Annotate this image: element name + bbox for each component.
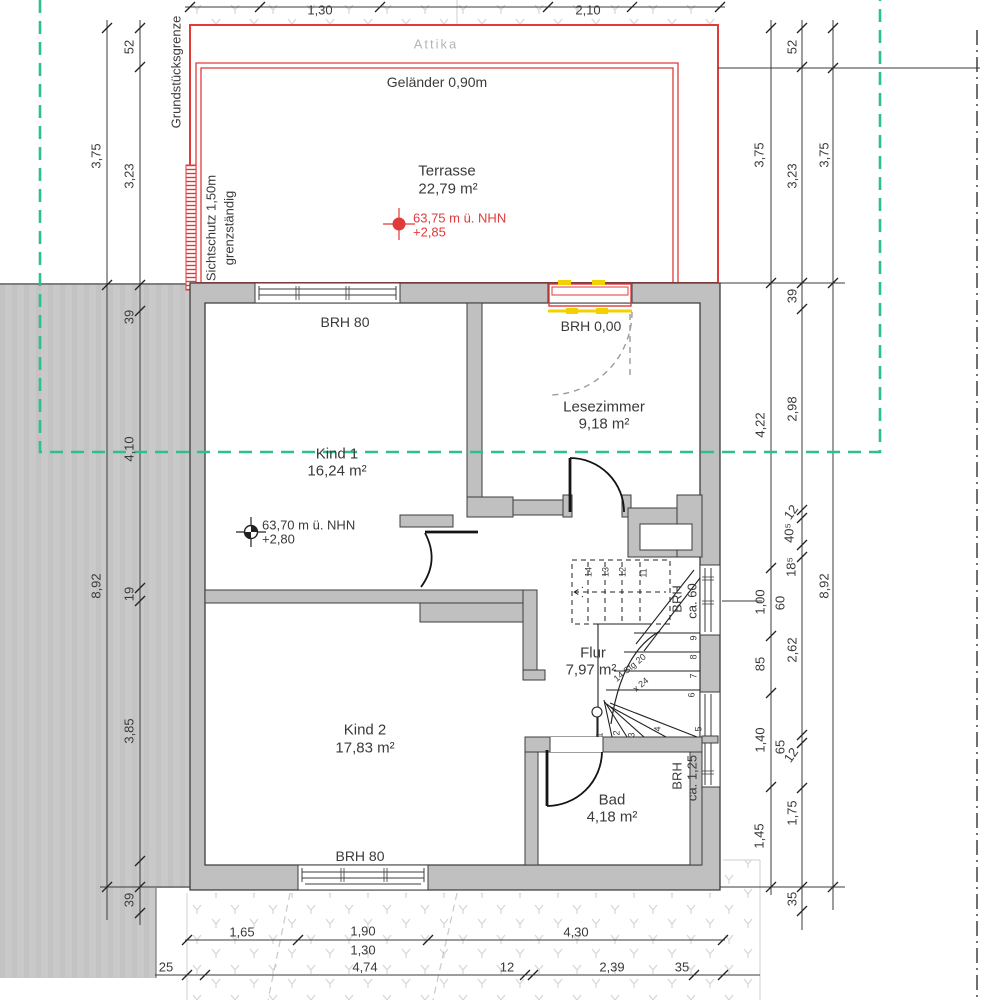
bad-door-swing [547,752,602,806]
stair-newel [592,707,602,717]
dimension-label: 2,62 [786,637,799,662]
terrace-railing-outline [186,25,718,290]
property-line-label: Grundstücksgrenze [170,16,183,129]
dimension-label: 8,92 [90,573,103,598]
lesezimmer-door-swing [570,458,624,512]
dimension-label: 2,10 [575,4,600,17]
dimension-label: 1,40 [754,727,767,752]
stair-window-sill-line1: BRH [671,585,684,612]
room-name-kind1: Kind 1 [316,447,359,462]
floor-plan-drawing [0,0,1000,1000]
room-area-lesezimmer: 9,18 m² [579,417,630,432]
dimension-label: 4,22 [754,412,767,437]
interior-walls [205,303,718,865]
dimension-label: 39 [123,893,136,907]
dimension-label: 52 [786,40,799,54]
dimension-label: 19 [123,587,136,601]
dimension-label: 3,85 [123,718,136,743]
dimension-label: 35 [786,892,799,906]
room-area-bad: 4,18 m² [587,810,638,825]
dimension-label: 39 [786,289,799,303]
room-area-flur: 7,97 m² [566,663,617,678]
dimension-label: 39 [123,310,136,324]
privacy-screen-label-line2: grenzständig [223,191,236,265]
dimension-label: 1,65 [229,926,254,939]
neighbour-plot-band [0,283,190,978]
kind2-window [298,865,428,890]
dimension-label: 4,10 [123,436,136,461]
dimension-label: 25 [159,961,173,974]
dimension-label: 1,00 [754,589,767,614]
stair-step-number: 5 [695,726,704,731]
room-name-lesezimmer: Lesezimmer [563,400,645,415]
dimension-label: 85 [754,657,767,671]
dimension-label: 3,75 [90,143,103,168]
stair-step-number: 1 [596,732,605,737]
kind2-window-sill-label: BRH 80 [335,849,384,863]
dimension-label: 1,30 [350,944,375,957]
interior-elevation-line1: 63,70 m ü. NHN [262,519,355,532]
kind1-window [255,283,400,303]
stair-window [700,565,720,635]
stair-step-number: 2 [613,730,622,735]
dimension-label: 12 [500,961,514,974]
dimension-label: 60 [774,596,787,610]
dimension-label: 18⁵ [785,557,798,577]
stair-step-number: 7 [690,673,699,678]
terrace-area: 22,79 m² [418,182,477,197]
floor-plan-page: Attika Geländer 0,90m Terrasse 22,79 m² … [0,0,1000,1000]
terrace-name: Terrasse [418,164,476,179]
shaft-niche [640,524,692,550]
building-outer-walls [190,283,720,890]
kind1-door-swing [421,533,432,587]
dimension-label: 1,45 [753,823,766,848]
stair-step-number: 6 [688,692,697,697]
dimension-label: 3,23 [123,163,136,188]
dimension-label: 1,75 [786,800,799,825]
dimension-label: 52 [123,40,136,54]
room-area-kind1: 16,24 m² [307,464,366,479]
dimension-label: 8,92 [818,573,831,598]
dimension-label: 4,74 [352,961,377,974]
bad-window-sill-line1: BRH [671,762,684,789]
room-name-bad: Bad [599,793,626,808]
room-area-kind2: 17,83 m² [335,741,394,756]
kind1-window-sill-label: BRH 80 [320,315,369,329]
room-name-kind2: Kind 2 [344,723,387,738]
privacy-screen-label-line1: Sichtschutz 1,50m [205,175,218,281]
dimension-label: 3,75 [818,142,831,167]
terrace-door [548,280,632,395]
bad-window-sill-line2: ca. 1,25 [686,755,699,801]
stair-step-number: 9 [690,635,699,640]
dimension-label: 40⁵ [783,523,796,543]
privacy-screen-hatch [186,165,196,290]
dimension-lines [100,7,980,975]
dimension-label: 35 [675,961,689,974]
terrace-elevation-line2: +2,85 [413,226,446,239]
windows [255,283,720,890]
stair-window-sill-line2: ca. 60 [686,583,699,618]
stair-step-number: 14 [585,567,594,577]
stair-step-number: 4 [654,726,663,731]
dimension-label: 4,30 [563,926,588,939]
stair-step-number: 12 [619,567,628,577]
stair-step-number: 11 [640,568,649,577]
dimension-label: 2,98 [786,396,799,421]
dimension-label: 1,90 [350,925,375,938]
stair-step-number: 8 [690,654,699,659]
terrace-elevation-line1: 63,75 m ü. NHN [413,212,506,225]
dimension-label: 3,75 [753,142,766,167]
dimension-label: 3,23 [786,163,799,188]
stair-step-number: 13 [602,567,611,577]
terrace-door-sill-label: BRH 0,00 [561,319,622,333]
dimension-label: 2,39 [599,961,624,974]
attika-label: Attika [414,38,459,51]
elevation-marker-terrace [383,208,415,240]
stair-step-number: 3 [628,732,637,737]
interior-elevation-line2: +2,80 [262,533,295,546]
railing-label: Geländer 0,90m [387,75,487,89]
dimension-label: 1,30 [307,4,332,17]
room-name-flur: Flur [580,646,606,661]
